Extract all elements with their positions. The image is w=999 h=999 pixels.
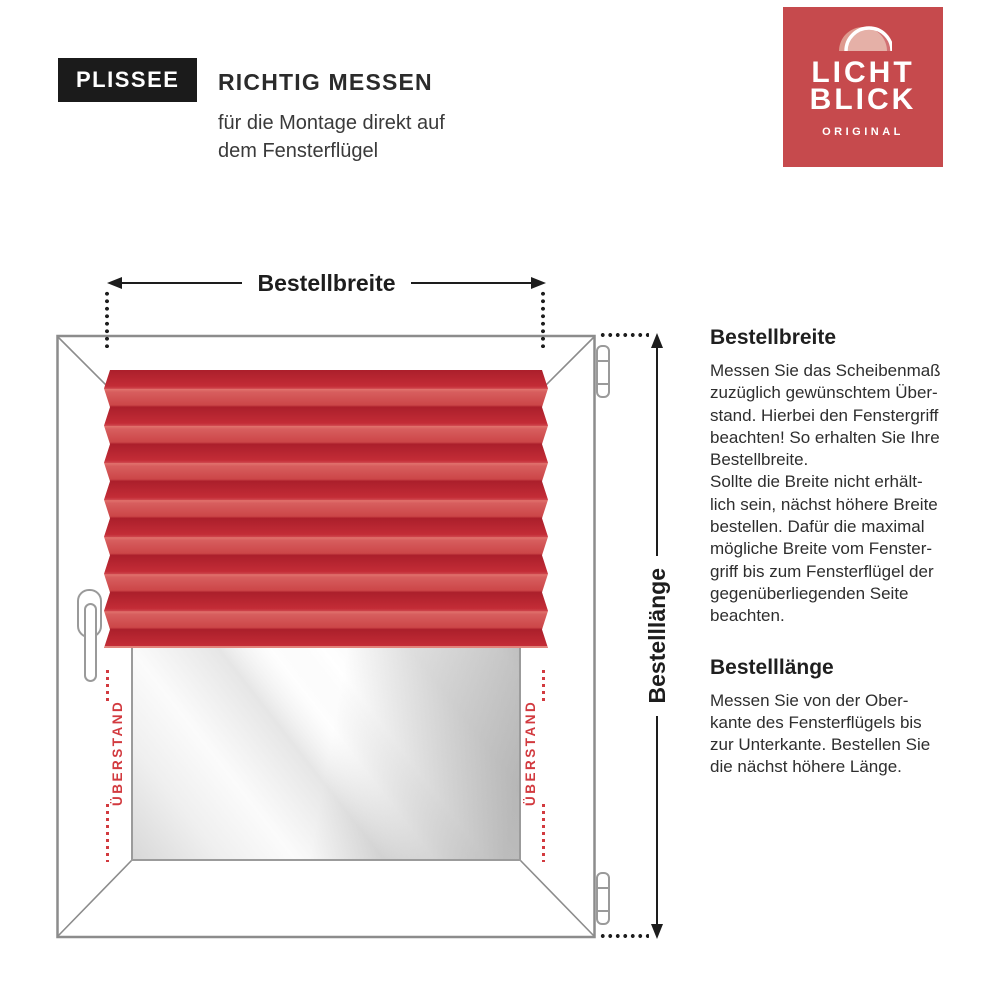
overhang-label-right: ÜBERSTAND (523, 702, 538, 804)
instructions-column: Bestellbreite Messen Sie das Scheibenmaß… (710, 326, 995, 779)
hinge-top-icon (596, 345, 610, 398)
measure-line (656, 716, 659, 924)
section-heading-bestelllaenge: Bestelllänge (710, 656, 995, 680)
blind-bottom-rail (104, 646, 548, 649)
arrowhead-right-icon (531, 277, 546, 289)
measure-line (656, 348, 659, 556)
red-dotted-line (542, 804, 545, 862)
section-heading-bestellbreite: Bestellbreite (710, 326, 995, 350)
width-measure-label: Bestellbreite (257, 270, 395, 297)
red-dotted-line (106, 804, 109, 862)
length-measure: Bestelllänge (646, 333, 668, 939)
red-dotted-line (106, 670, 109, 702)
dotted-guide-left (105, 290, 109, 348)
length-measure-label: Bestelllänge (644, 568, 671, 704)
measure-line (122, 282, 242, 285)
overhang-annotation-right: ÜBERSTAND (519, 670, 551, 862)
overhang-label-left: ÜBERSTAND (110, 702, 125, 804)
arrowhead-left-icon (107, 277, 122, 289)
pleated-blind (104, 370, 548, 648)
dotted-connector-bottom (599, 934, 649, 938)
plissee-measuring-guide: PLISSEE RICHTIG MESSEN für die Montage d… (0, 0, 999, 999)
section-body-bestelllaenge: Messen Sie von der Ober- kante des Fenst… (710, 690, 995, 779)
section-body-bestellbreite: Messen Sie das Scheibenmaß zuzüglich gew… (710, 360, 995, 628)
overhang-annotation-left: ÜBERSTAND (92, 670, 124, 862)
arrowhead-down-icon (651, 924, 663, 939)
measure-line (411, 282, 531, 285)
dotted-connector-top (599, 333, 649, 337)
width-measure: Bestellbreite (107, 272, 546, 294)
red-dotted-line (542, 670, 545, 702)
arrowhead-up-icon (651, 333, 663, 348)
miter-bottom-right (520, 860, 594, 936)
hinge-bottom-icon (596, 872, 610, 925)
dotted-guide-right (541, 290, 545, 348)
miter-bottom-left (58, 860, 132, 936)
